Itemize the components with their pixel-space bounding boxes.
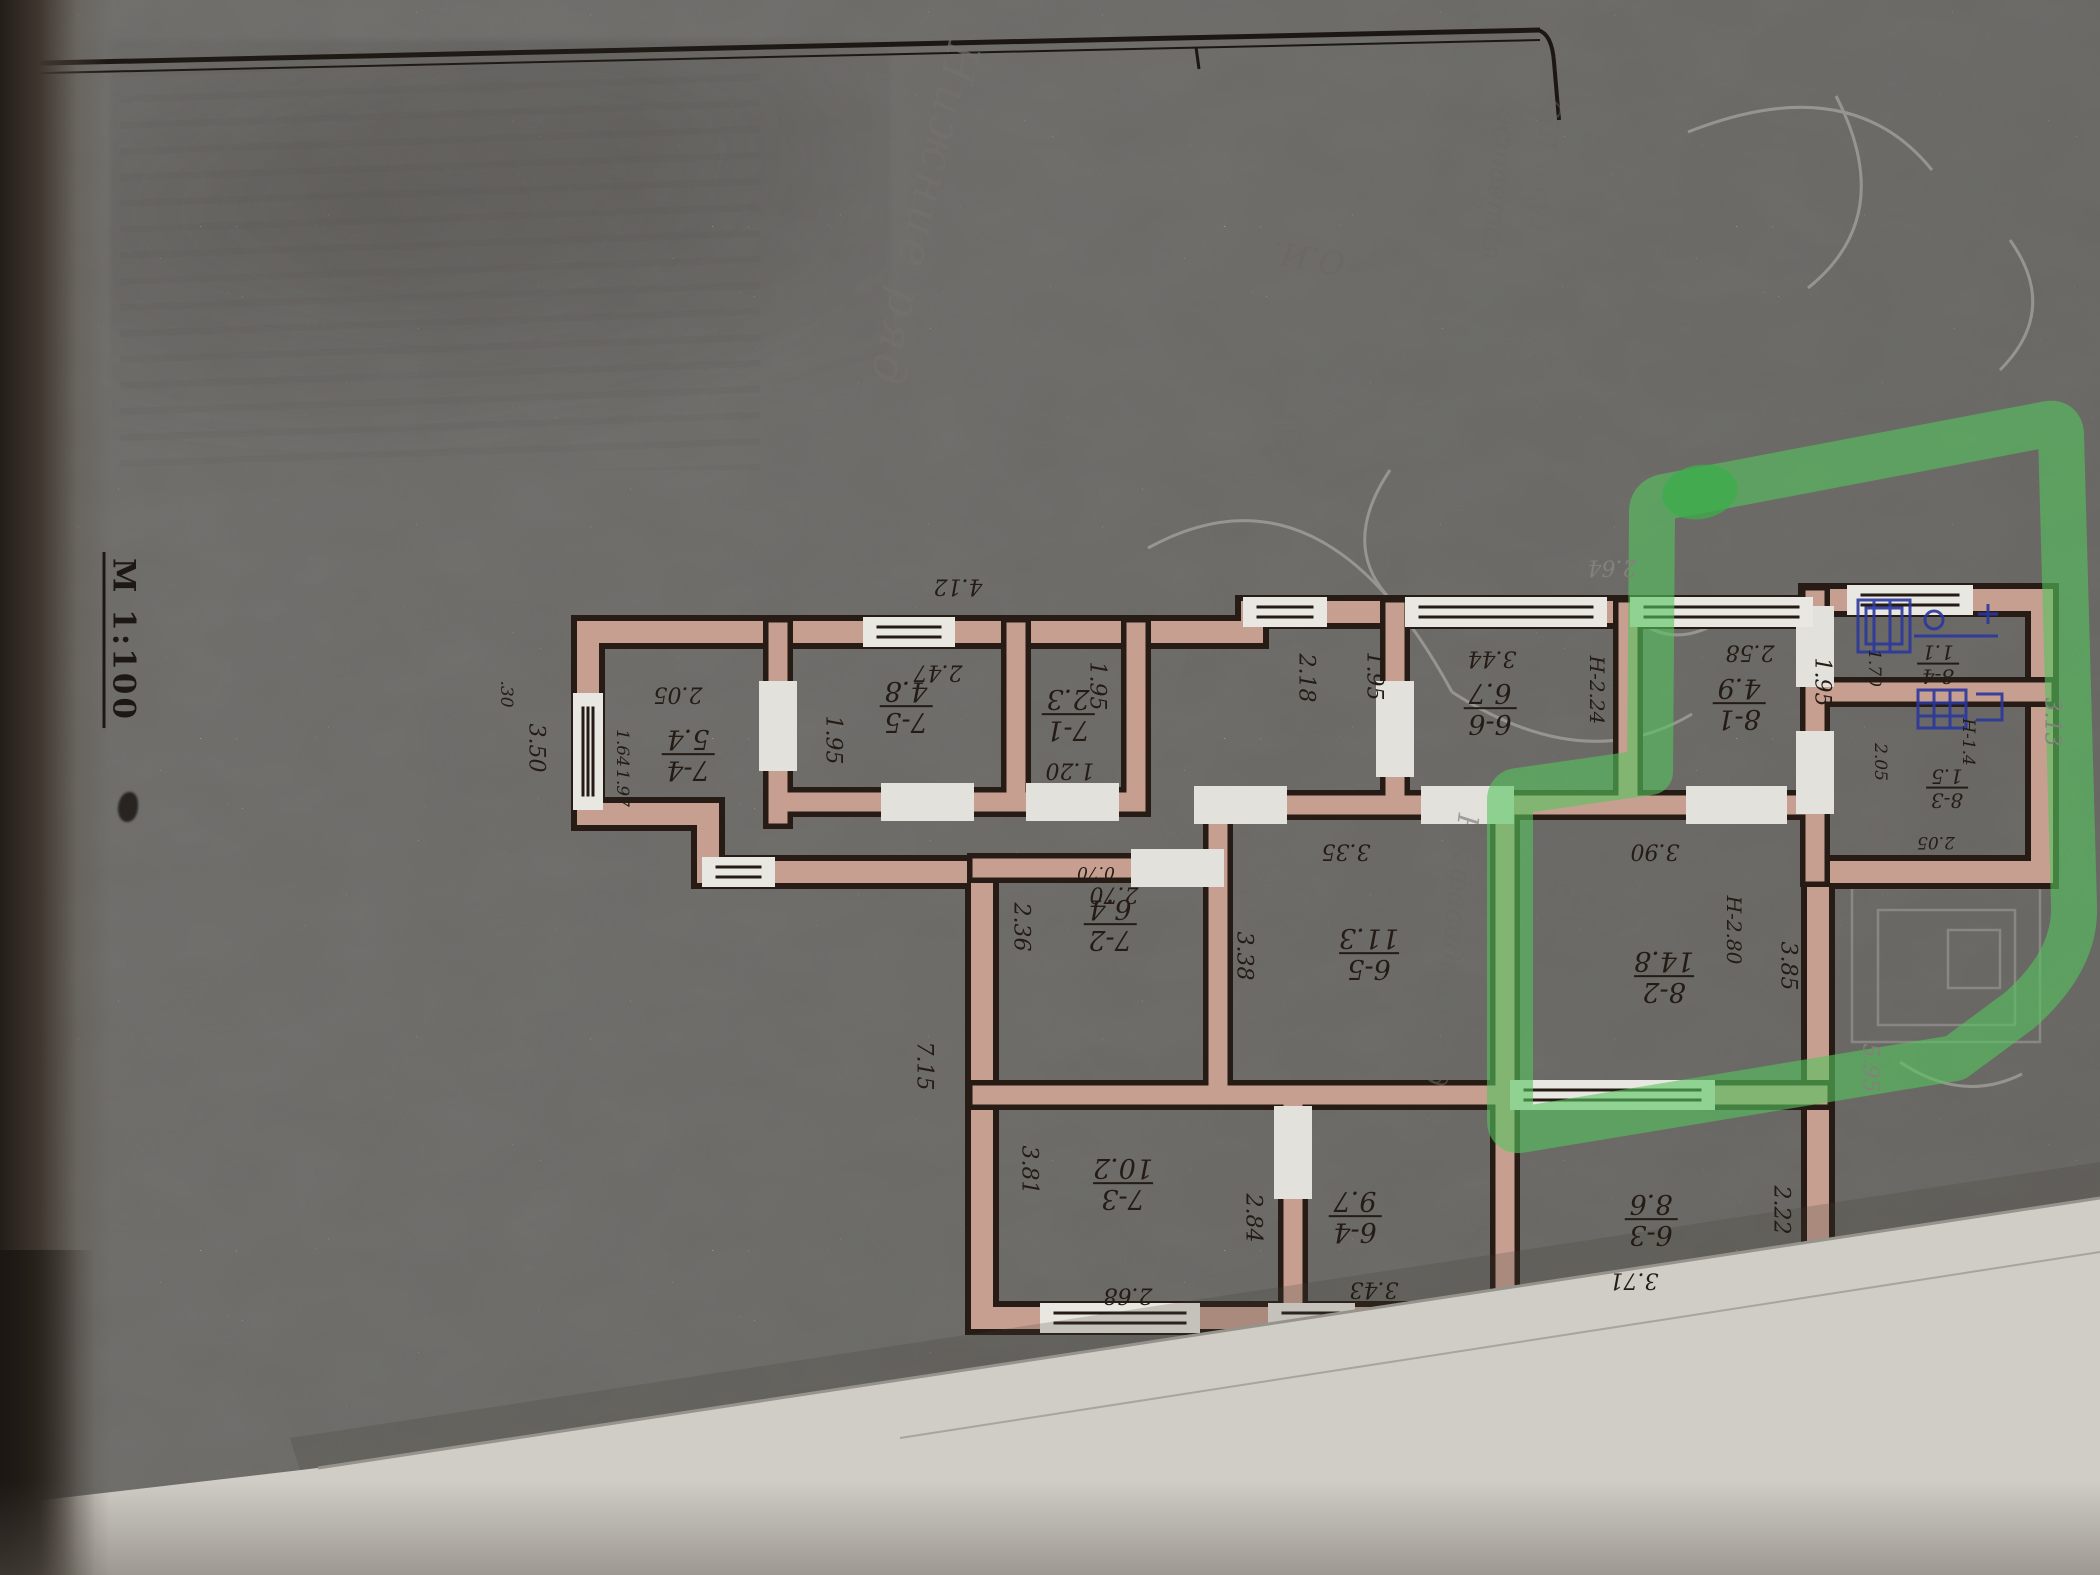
room-6-6-label: 6-66.7 <box>1463 678 1516 738</box>
dim-label: 2.47 <box>914 660 963 685</box>
dim-label: 1.95 <box>821 716 846 765</box>
room-7-3-label: 7-310.2 <box>1093 1153 1153 1213</box>
dim-label: 2.68 <box>1104 1283 1153 1308</box>
photographed-floor-plan-page: М 1:100 7-45.4 7-54.8 7-12.3 6-66.7 8-14… <box>0 0 2100 1575</box>
photocopy-streaks <box>120 70 760 470</box>
scale-label: М 1:100 <box>103 552 142 728</box>
dim-label: 1.95 <box>1085 662 1110 711</box>
dim-label: 2.70 <box>1090 882 1139 907</box>
dim-label: 1.20 <box>1046 758 1095 783</box>
dim-label: 2.18 <box>1294 654 1319 703</box>
dim-label: 1.64 <box>612 729 632 767</box>
room-8-1-label: 8-14.9 <box>1712 673 1765 733</box>
bottom-shadow <box>0 1480 2100 1575</box>
dim-label-pencil: 5.95 <box>1858 1044 1883 1093</box>
room-6-5-label: 6-511.3 <box>1339 923 1399 983</box>
dim-label-pencil: 2.64 <box>1588 555 1637 580</box>
height-label: Н-1.4 <box>1958 718 1978 766</box>
dim-label: 2.05 <box>654 682 703 707</box>
dim-label: 3.43 <box>1350 1277 1399 1302</box>
dim-label: 3.81 <box>1017 1146 1042 1195</box>
dim-label: 3.85 <box>1776 942 1801 991</box>
height-label: Н-2.80 <box>1722 896 1746 965</box>
dim-label: 3.90 <box>1631 839 1680 864</box>
room-8-2-label: 8-214.8 <box>1634 946 1694 1006</box>
dim-label: 3.35 <box>1322 839 1371 864</box>
dim-label: 2.05 <box>1870 743 1890 781</box>
dim-label: 2.05 <box>1917 832 1955 852</box>
dim-label: 2.58 <box>1726 640 1775 665</box>
room-8-3-label: 8-31.5 <box>1926 765 1968 810</box>
dim-label: 3.38 <box>1232 932 1257 981</box>
dim-label: 1.95 <box>1362 652 1387 701</box>
dim-label: 4.12 <box>934 574 983 599</box>
dim-label: 2.36 <box>1009 903 1034 952</box>
room-7-5-label: 7-54.8 <box>879 676 932 736</box>
dim-label: 1.95 <box>1810 658 1835 707</box>
dim-label: 1.97 <box>612 769 632 807</box>
dim-label: 3.71 <box>1610 1268 1659 1293</box>
room-6-3-label: 6-38.6 <box>1624 1189 1677 1249</box>
height-label: Н-2.24 <box>1585 656 1609 725</box>
dim-label: 1.70 <box>1864 649 1884 687</box>
dim-label: 3.44 <box>1468 646 1517 671</box>
room-8-4-label: 8-41.1 <box>1917 641 1959 686</box>
room-7-4-label: 7-45.4 <box>661 724 714 784</box>
dim-label-pencil: 3.13 <box>2040 698 2065 747</box>
dim-label: 2.22 <box>1769 1186 1794 1235</box>
dim-label: 0.70 <box>1077 862 1115 882</box>
dim-label: 3.50 <box>524 724 549 773</box>
dim-label: 2.84 <box>1241 1194 1266 1243</box>
dim-label: .30 <box>496 680 516 707</box>
room-6-4-label: 6-49.7 <box>1328 1186 1381 1246</box>
dim-label: 7.15 <box>912 1042 937 1091</box>
